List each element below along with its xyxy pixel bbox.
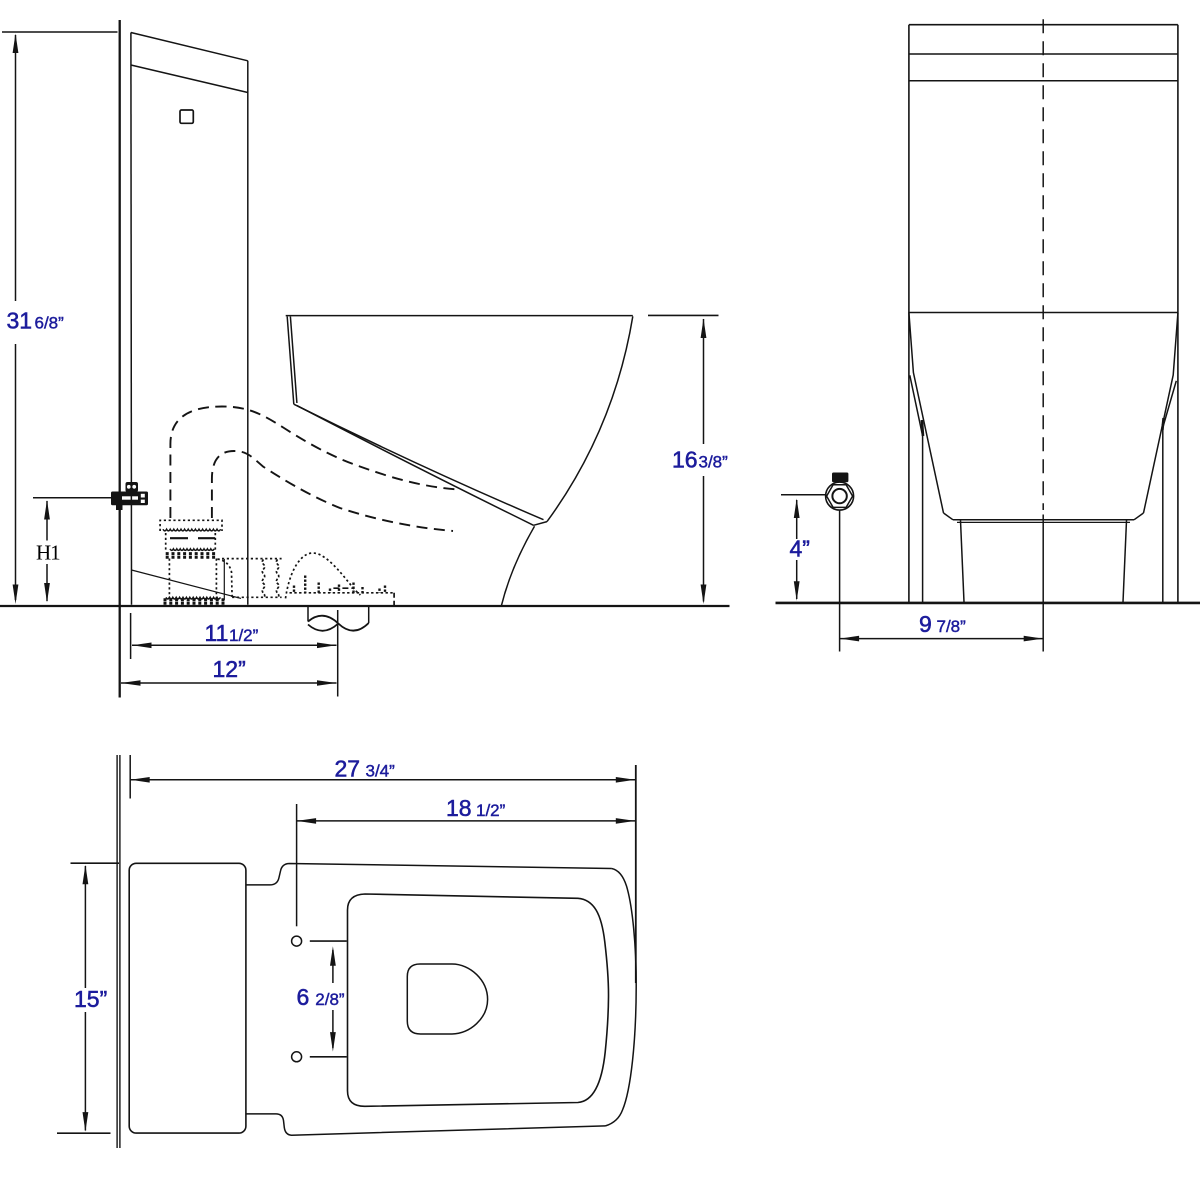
svg-text:11: 11: [205, 620, 229, 646]
svg-text:15”: 15”: [74, 986, 107, 1012]
svg-text:1/2”: 1/2”: [476, 801, 506, 820]
svg-text:9: 9: [919, 611, 932, 637]
svg-text:4”: 4”: [790, 536, 810, 562]
svg-text:2/8”: 2/8”: [315, 990, 345, 1009]
svg-text:1/2”: 1/2”: [229, 626, 259, 645]
svg-text:27: 27: [335, 756, 361, 782]
svg-text:12”: 12”: [213, 656, 246, 682]
svg-text:6: 6: [297, 984, 310, 1010]
svg-text:6/8”: 6/8”: [35, 314, 65, 333]
svg-text:7/8”: 7/8”: [937, 617, 967, 636]
svg-text:18: 18: [446, 795, 472, 821]
svg-text:3/4”: 3/4”: [366, 762, 396, 781]
svg-text:3/8”: 3/8”: [699, 453, 729, 472]
svg-text:16: 16: [672, 447, 698, 473]
svg-text:H1: H1: [36, 541, 60, 565]
svg-text:31: 31: [7, 308, 33, 334]
